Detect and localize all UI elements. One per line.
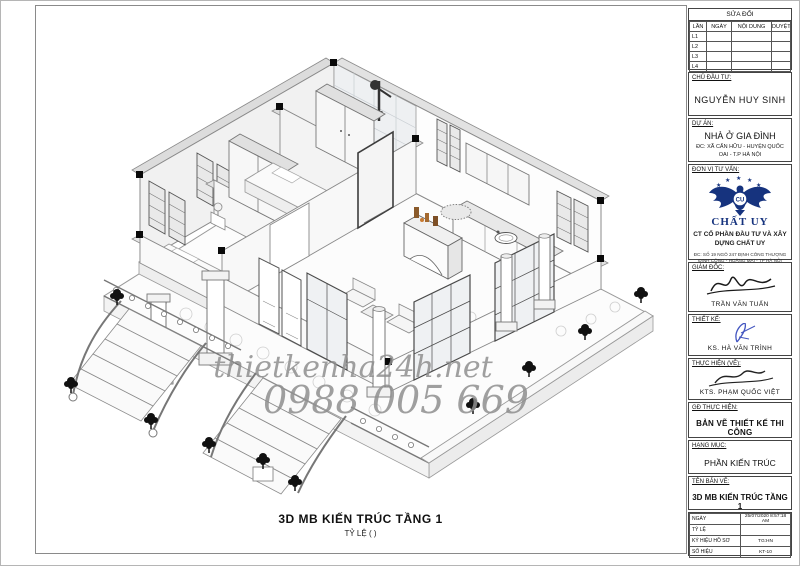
consultant-label: ĐƠN VỊ TƯ VẤN: bbox=[689, 165, 791, 173]
designer-signature bbox=[703, 323, 779, 343]
info-value-code: TG:HN bbox=[741, 536, 791, 547]
drafter-signature bbox=[703, 367, 779, 387]
owner-box: CHỦ ĐẦU TƯ: NGUYỄN HUY SINH bbox=[688, 72, 792, 116]
project-label: DỰ ÁN: bbox=[689, 119, 791, 127]
table-row: TỶ LỆ bbox=[690, 525, 791, 536]
kitchen-sink bbox=[495, 233, 517, 244]
drafter-box: THỰC HIỆN (VẼ): KTS. PHẠM QUỐC VIỆT bbox=[688, 358, 792, 400]
info-value-scale bbox=[741, 525, 791, 536]
drawing-name-value: 3D MB KIẾN TRÚC TẦNG 1 bbox=[689, 493, 791, 511]
info-label-date: NGÀY bbox=[690, 514, 741, 525]
floor-plan-3d-drawing: thietkenha24h.net 0988 005 669 bbox=[36, 6, 687, 553]
project-address: ĐC: XÃ CẤN HỮU - HUYỆN QUỐC OAI - T.P HÀ… bbox=[689, 144, 791, 159]
revision-table: SỬA ĐỔI LẦN NGÀY NỘI DUNG DUYỆT L1 L2 L3… bbox=[688, 8, 792, 70]
stage-box: GĐ THỰC HIỆN: BẢN VẼ THIẾT KẾ THI CÔNG bbox=[688, 402, 792, 438]
svg-text:★: ★ bbox=[736, 175, 741, 182]
rev-col-noidung: NỘI DUNG bbox=[732, 22, 772, 32]
drawing-scale: TỶ LỆ ( ) bbox=[35, 529, 686, 538]
company-name: CT CỔ PHẦN ĐẦU TƯ VÀ XÂY DỰNG CHẤT UY bbox=[689, 231, 791, 249]
drawing-area: thietkenha24h.net 0988 005 669 bbox=[35, 5, 687, 554]
designer-name: KS. HÀ VĂN TRÌNH bbox=[689, 345, 791, 352]
info-value-number: KT-10 bbox=[741, 547, 791, 558]
rev-col-ngay: NGÀY bbox=[707, 22, 732, 32]
drawing-name-box: TÊN BẢN VẼ: 3D MB KIẾN TRÚC TẦNG 1 bbox=[688, 476, 792, 510]
info-label-number: SỐ HIỆU bbox=[690, 547, 741, 558]
info-label-code: KÝ HIỆU HỒ SƠ bbox=[690, 536, 741, 547]
owner-label: CHỦ ĐẦU TƯ: bbox=[689, 73, 791, 81]
owner-name: NGUYỄN HUY SINH bbox=[689, 95, 791, 105]
drawing-title: 3D MB KIẾN TRÚC TẦNG 1 bbox=[35, 512, 686, 526]
drawing-name-label: TÊN BẢN VẼ: bbox=[689, 477, 791, 485]
designer-label: THIẾT KẾ: bbox=[689, 315, 791, 323]
designer-box: THIẾT KẾ: KS. HÀ VĂN TRÌNH bbox=[688, 314, 792, 356]
category-box: HẠNG MỤC: PHẦN KIẾN TRÚC bbox=[688, 440, 792, 474]
consultant-box: ĐƠN VỊ TƯ VẤN: ★★ ★★ ★ CU CHẤT UY CT CỔ … bbox=[688, 164, 792, 260]
director-name: TRẦN VĂN TUẤN bbox=[689, 301, 791, 308]
table-row: SỐ HIỆU KT-10 bbox=[690, 547, 791, 558]
drawing-caption: 3D MB KIẾN TRÚC TẦNG 1 TỶ LỆ ( ) bbox=[35, 512, 686, 538]
director-signature bbox=[703, 271, 779, 297]
rev-col-duyet: DUYỆT bbox=[772, 22, 791, 32]
table-row: NGÀY 25/07/2020 8:57:18 AM bbox=[690, 514, 791, 525]
rev-col-lan: LẦN bbox=[690, 22, 707, 32]
svg-text:★: ★ bbox=[747, 177, 752, 184]
project-box: DỰ ÁN: NHÀ Ở GIA ĐÌNH ĐC: XÃ CẤN HỮU - H… bbox=[688, 118, 792, 162]
watermark-phone: 0988 005 669 bbox=[263, 378, 529, 422]
table-row: L2 bbox=[690, 42, 791, 52]
chat-uy-logo-icon: ★★ ★★ ★ CU bbox=[704, 174, 776, 216]
svg-text:★: ★ bbox=[725, 177, 730, 184]
drafter-label: THỰC HIỆN (VẼ): bbox=[689, 359, 791, 367]
drafter-name: KTS. PHẠM QUỐC VIỆT bbox=[689, 389, 791, 396]
table-row: L3 bbox=[690, 52, 791, 62]
stage-label: GĐ THỰC HIỆN: bbox=[689, 403, 791, 411]
category-label: HẠNG MỤC: bbox=[689, 441, 791, 449]
category-value: PHẦN KIẾN TRÚC bbox=[689, 458, 791, 468]
info-table: NGÀY 25/07/2020 8:57:18 AM TỶ LỆ KÝ HIỆU… bbox=[688, 512, 792, 556]
info-value-date: 25/07/2020 8:57:18 AM bbox=[741, 514, 791, 525]
table-row: L1 bbox=[690, 32, 791, 42]
director-box: GIÁM ĐỐC: TRẦN VĂN TUẤN bbox=[688, 262, 792, 312]
stage-value: BẢN VẼ THIẾT KẾ THI CÔNG bbox=[689, 419, 791, 437]
table-row: KÝ HIỆU HỒ SƠ TG:HN bbox=[690, 536, 791, 547]
director-label: GIÁM ĐỐC: bbox=[689, 263, 791, 271]
revision-title: SỬA ĐỔI bbox=[689, 9, 791, 21]
project-name: NHÀ Ở GIA ĐÌNH bbox=[689, 131, 791, 141]
info-label-scale: TỶ LỆ bbox=[690, 525, 741, 536]
table-row: L4 bbox=[690, 62, 791, 72]
logo-monogram: CU bbox=[736, 198, 745, 204]
